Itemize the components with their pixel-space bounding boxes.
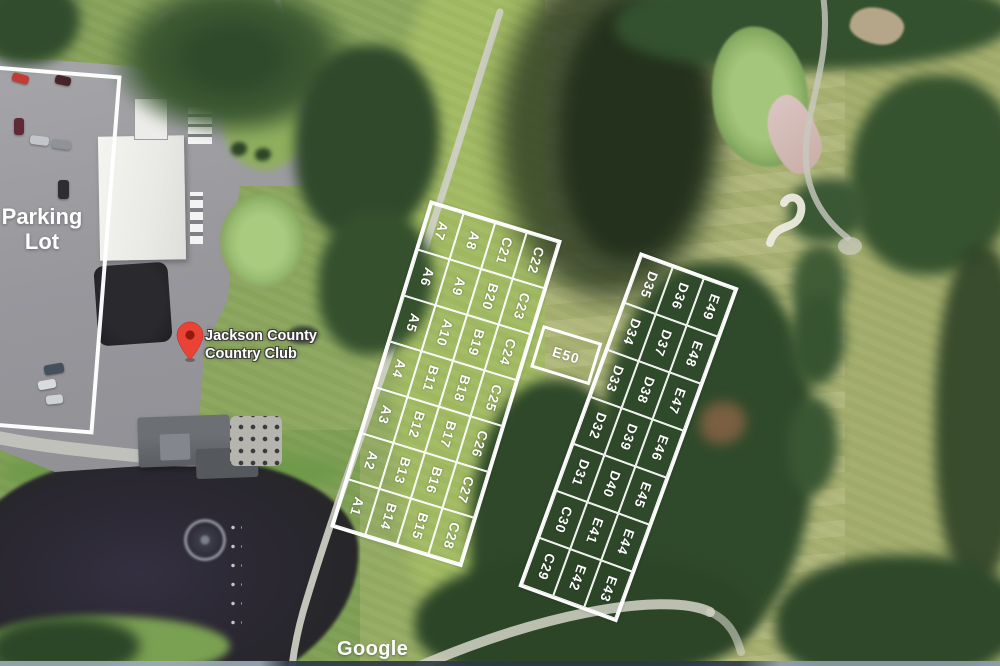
plot-cell-label: A4 — [389, 358, 408, 380]
plot-cell-label: D34 — [621, 317, 643, 348]
plot-cell-label: B17 — [437, 419, 458, 449]
putting-green-circle — [220, 194, 304, 290]
parking-label-line1: Parking — [0, 205, 92, 230]
plot-cell-label: E41 — [583, 516, 605, 546]
pond-left-trees — [0, 618, 140, 666]
plot-cell-label: A1 — [347, 496, 366, 518]
plot-cell-label: A5 — [403, 312, 422, 334]
plot-cell-label: D32 — [586, 411, 608, 442]
plot-cell-label: B19 — [465, 327, 486, 357]
pin-label-line1: Jackson County — [205, 327, 317, 345]
plot-cell-label: E47 — [666, 387, 688, 417]
plot-cell-label: B12 — [406, 410, 427, 440]
plot-cell-label: A10 — [434, 318, 455, 348]
plot-cell-label: D37 — [652, 328, 674, 359]
plot-cell-label: E42 — [566, 563, 588, 593]
plot-cell-label: D31 — [569, 458, 591, 489]
plot-cell-label: E48 — [683, 340, 705, 370]
plot-cell-label: A8 — [463, 230, 482, 252]
plot-cell-label: D33 — [603, 364, 625, 395]
plot-cell-label: D40 — [600, 469, 622, 500]
golf-cart-row — [190, 192, 203, 244]
google-watermark[interactable]: Google — [337, 638, 408, 661]
plot-cell-label: C29 — [535, 552, 557, 583]
plot-cell-label: C25 — [483, 383, 504, 413]
plot-cell-label: D35 — [638, 270, 660, 301]
plot-cell-label: E50 — [551, 343, 582, 366]
plot-cell-label: B18 — [451, 373, 472, 403]
map-bottom-edge-strip — [0, 661, 1000, 666]
clubhouse-gable-highlight — [160, 433, 191, 460]
plot-cell-label: D39 — [617, 422, 639, 453]
plot-cell-label: B13 — [392, 455, 413, 485]
pin-label: Jackson County Country Club — [205, 327, 317, 363]
pond-buoys — [228, 518, 242, 630]
plot-cell-label: D36 — [669, 281, 691, 312]
plot-cell-label: B20 — [479, 281, 500, 311]
satellite-map-canvas[interactable]: A7A8C21C22A6A9B20C23A5A10B19C24A4B11B18C… — [0, 0, 1000, 666]
plot-cell-label: A9 — [449, 276, 468, 298]
plot-cell-label: C28 — [441, 521, 462, 551]
pin-label-line2: Country Club — [205, 345, 317, 363]
plot-cell-label: E45 — [631, 480, 653, 510]
plot-cell-label: C26 — [469, 429, 490, 459]
plot-cell-label: B15 — [409, 511, 430, 541]
plot-cell-label: C24 — [497, 337, 518, 367]
plot-cell-label: B16 — [423, 465, 444, 495]
plot-cell-label: E49 — [700, 293, 722, 323]
plot-cell-label: C22 — [525, 245, 546, 275]
plot-cell-label: C30 — [552, 505, 574, 536]
plot-cell-label: C27 — [455, 475, 476, 505]
patio-with-tables — [230, 416, 282, 466]
plot-cell-label: C21 — [493, 236, 514, 266]
fountain-ripple — [184, 519, 226, 561]
plot-cell-label: B14 — [378, 501, 399, 531]
plot-cell-label: B11 — [420, 364, 441, 394]
plot-cell-label: C23 — [511, 291, 532, 321]
plot-cell-label: E43 — [597, 574, 619, 604]
plot-cell-label: A3 — [375, 404, 394, 426]
plot-cell-label: E46 — [648, 433, 670, 463]
parking-label-line2: Lot — [0, 230, 92, 255]
plot-cell-label: A6 — [417, 266, 436, 288]
plot-cell-label: A2 — [361, 450, 380, 472]
plot-cell-label: D38 — [634, 375, 656, 406]
parking-lot-label: Parking Lot — [0, 205, 92, 254]
plot-cell-label: A7 — [431, 220, 450, 242]
plot-cell-label: E44 — [614, 527, 636, 557]
